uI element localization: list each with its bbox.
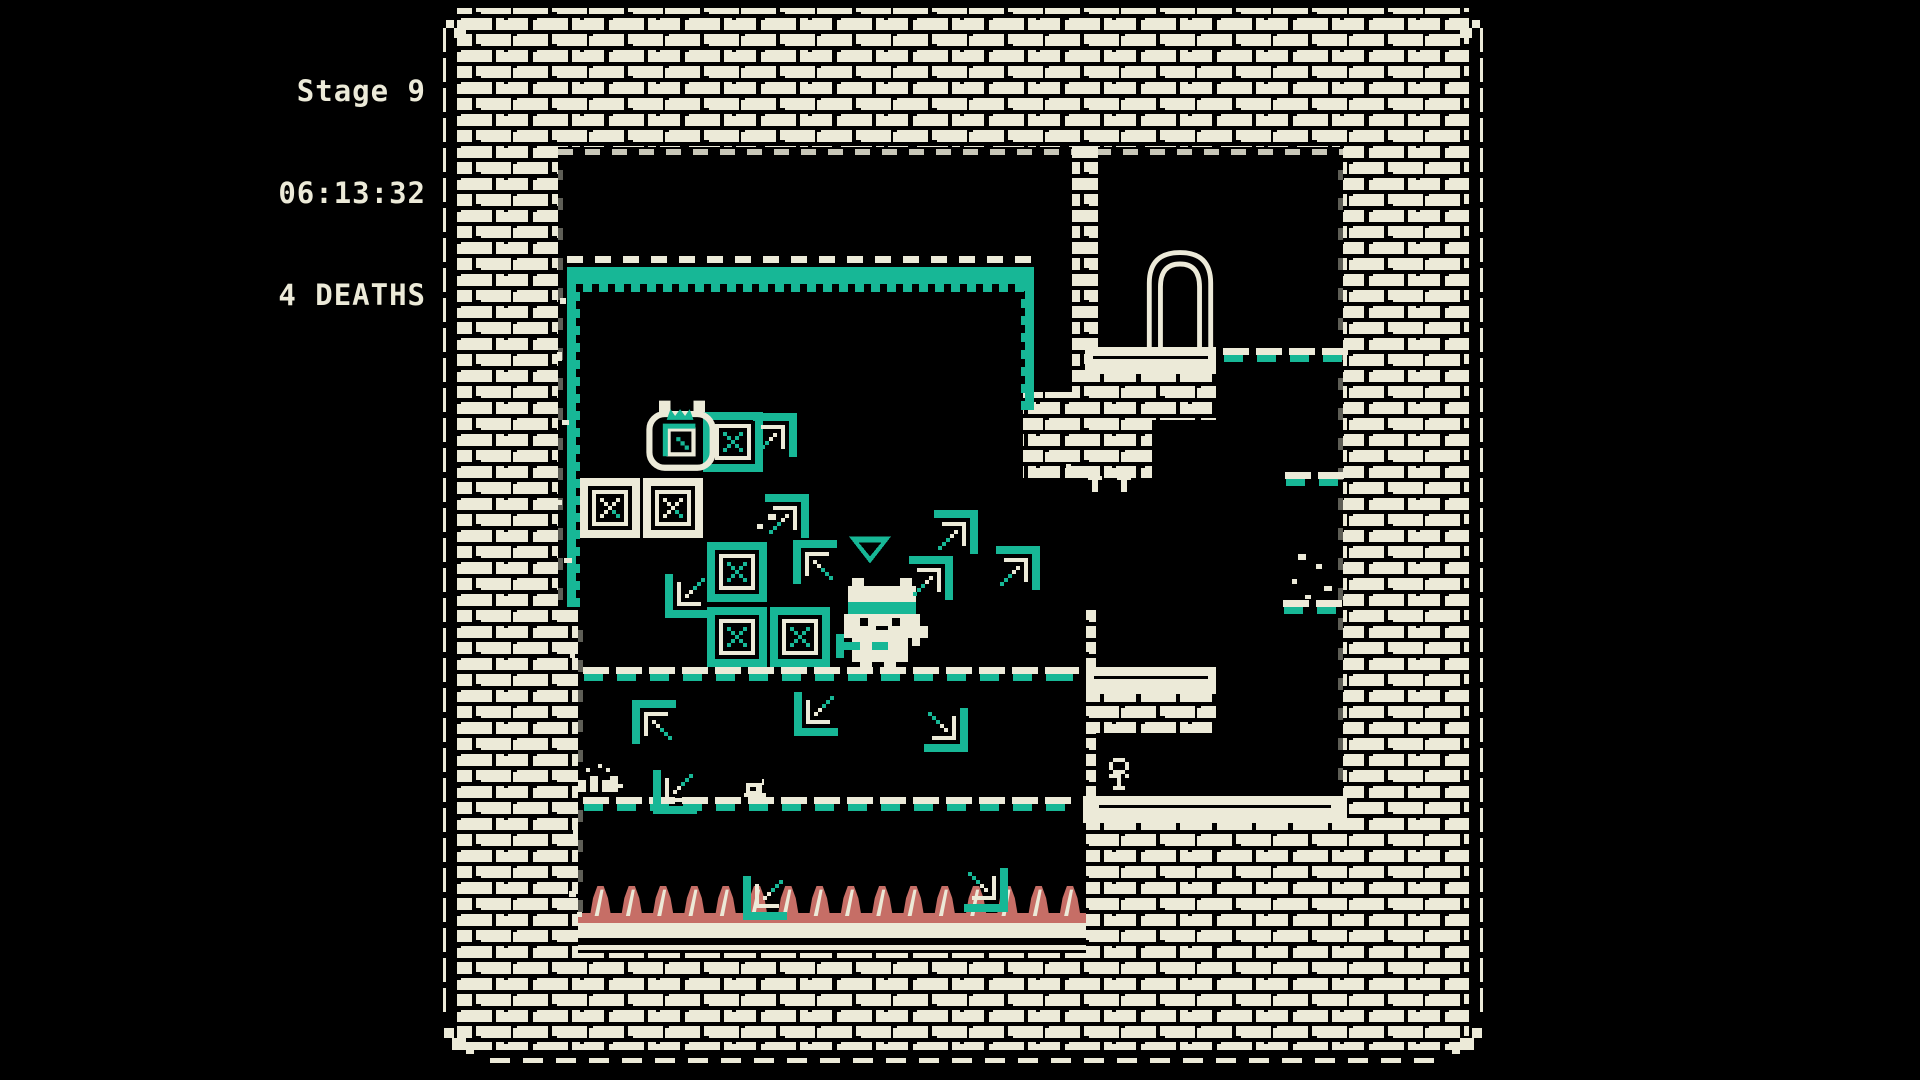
- dash-platform: [1012, 797, 1039, 811]
- wall-mark: [1088, 476, 1102, 492]
- plant-sprite: [1101, 758, 1137, 794]
- debris-pixel: [1292, 579, 1297, 584]
- respawn-marker: [849, 536, 891, 564]
- debris-pixel: [1298, 554, 1306, 560]
- dash-platform: [1318, 472, 1345, 486]
- debris-pixel: [1305, 595, 1311, 599]
- crate-sprite: [580, 478, 640, 538]
- arrow-bracket-sprite: [930, 510, 978, 558]
- ledge-platform: [1083, 796, 1347, 823]
- debris-pixel: [1052, 468, 1059, 473]
- dash-platform: [946, 667, 973, 681]
- shrub-sprite: [578, 764, 618, 792]
- wall-edge-dashes: [558, 149, 1075, 155]
- dash-platform: [748, 797, 775, 811]
- arrow-bracket-sprite: [632, 700, 680, 748]
- wall-edge-dither: [1338, 170, 1343, 810]
- debris-pixel: [1324, 586, 1332, 591]
- arrow-bracket-sprite: [743, 872, 791, 920]
- arrow-bracket-sprite: [905, 556, 953, 604]
- game-screen: Stage 9 06:13:32 4 DEATHS: [0, 0, 1920, 1080]
- dash-platform: [814, 797, 841, 811]
- arrow-bracket-sprite: [920, 704, 968, 752]
- debris-pixel: [570, 650, 575, 658]
- dash-platform: [682, 667, 709, 681]
- dash-platform: [1283, 600, 1310, 614]
- snail-sprite: [742, 779, 768, 799]
- arrow-bracket-sprite: [960, 864, 1008, 912]
- dash-platform: [583, 797, 610, 811]
- dash-platform: [781, 797, 808, 811]
- spike-pit-floor: [578, 913, 1086, 953]
- ledge-platform: [1086, 667, 1216, 694]
- wall-mark: [1117, 476, 1131, 492]
- crate-sprite: [770, 607, 830, 667]
- dash-platform: [715, 797, 742, 811]
- arrow-bracket-sprite: [665, 570, 713, 618]
- dash-platform: [1289, 348, 1316, 362]
- crate-sprite: [707, 607, 767, 667]
- debris-pixel: [768, 514, 776, 520]
- crate-sprite: [643, 478, 703, 538]
- wall-edge-dither: [578, 612, 583, 912]
- crate-sprite: [707, 542, 767, 602]
- zone-border-left: [567, 272, 580, 607]
- debris-pixel: [573, 830, 578, 835]
- dash-platform: [913, 797, 940, 811]
- dash-platform: [748, 667, 775, 681]
- dash-platform: [1316, 600, 1343, 614]
- dash-platform: [880, 797, 907, 811]
- ghost-cat-sprite: [636, 396, 728, 482]
- dash-platform: [979, 667, 1006, 681]
- debris-pixel: [566, 742, 572, 747]
- debris-pixel: [556, 500, 562, 505]
- dash-platform: [1256, 348, 1283, 362]
- debris-pixel: [557, 352, 562, 361]
- dash-platform: [847, 797, 874, 811]
- dash-platform: [979, 797, 1006, 811]
- debris-pixel: [560, 298, 566, 304]
- dash-platform: [1285, 472, 1312, 486]
- game-stage[interactable]: [0, 0, 1920, 1080]
- dash-platform: [1223, 348, 1250, 362]
- wall-edge-dither: [558, 170, 563, 600]
- dash-platform: [781, 667, 808, 681]
- debris-pixel: [562, 420, 569, 425]
- debris-pixel: [564, 558, 572, 563]
- ledge-platform: [1085, 347, 1216, 374]
- dash-platform: [616, 797, 643, 811]
- dash-platform: [1012, 667, 1039, 681]
- dash-platform: [1053, 667, 1080, 681]
- debris-pixel: [618, 784, 623, 788]
- arrow-bracket-sprite: [749, 413, 797, 461]
- debris-pixel: [757, 524, 763, 529]
- dash-platform: [649, 667, 676, 681]
- arrow-bracket-sprite: [653, 766, 701, 814]
- arrow-bracket-sprite: [794, 688, 842, 736]
- dash-platform: [946, 797, 973, 811]
- dash-platform: [616, 667, 643, 681]
- dash-platform: [1322, 348, 1349, 362]
- arrow-bracket-sprite: [992, 546, 1040, 594]
- zone-border-top: [567, 256, 1034, 292]
- debris-pixel: [1066, 464, 1071, 468]
- zone-border-right: [1021, 272, 1034, 410]
- debris-pixel: [577, 912, 582, 917]
- wall-edge-dashes: [1096, 149, 1343, 155]
- dash-platform: [583, 667, 610, 681]
- debris-pixel: [1316, 564, 1322, 569]
- dash-platform: [1045, 797, 1072, 811]
- doorway-arch: [1140, 243, 1220, 348]
- dash-platform: [715, 667, 742, 681]
- debris-pixel: [569, 891, 576, 897]
- arrow-bracket-sprite: [793, 540, 841, 588]
